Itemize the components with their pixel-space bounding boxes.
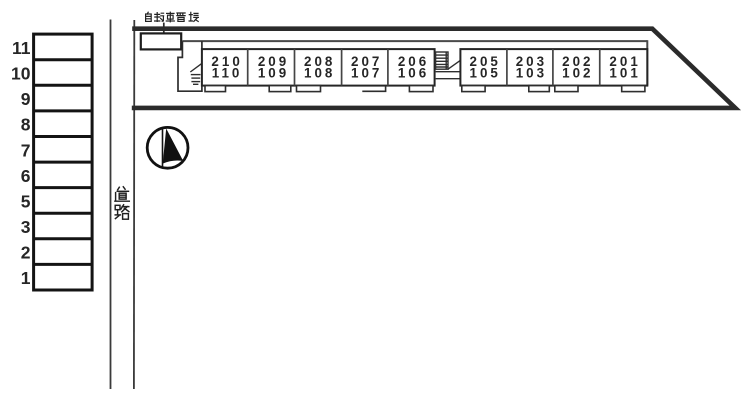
svg-text:109: 109 [258, 66, 289, 81]
svg-text:11: 11 [12, 38, 31, 58]
svg-text:101: 101 [609, 66, 640, 81]
svg-text:105: 105 [470, 66, 501, 81]
svg-text:9: 9 [21, 89, 31, 109]
svg-text:102: 102 [562, 66, 593, 81]
svg-text:6: 6 [21, 166, 31, 186]
svg-text:3: 3 [21, 217, 31, 237]
svg-text:103: 103 [516, 66, 547, 81]
svg-text:10: 10 [11, 64, 31, 84]
svg-text:108: 108 [304, 66, 335, 81]
svg-text:8: 8 [21, 115, 31, 135]
svg-text:107: 107 [351, 66, 382, 81]
svg-text:2: 2 [21, 243, 31, 263]
svg-text:7: 7 [21, 140, 31, 160]
svg-text:106: 106 [398, 66, 429, 81]
svg-text:1: 1 [21, 268, 31, 288]
svg-text:5: 5 [21, 191, 31, 211]
svg-text:110: 110 [212, 66, 243, 81]
